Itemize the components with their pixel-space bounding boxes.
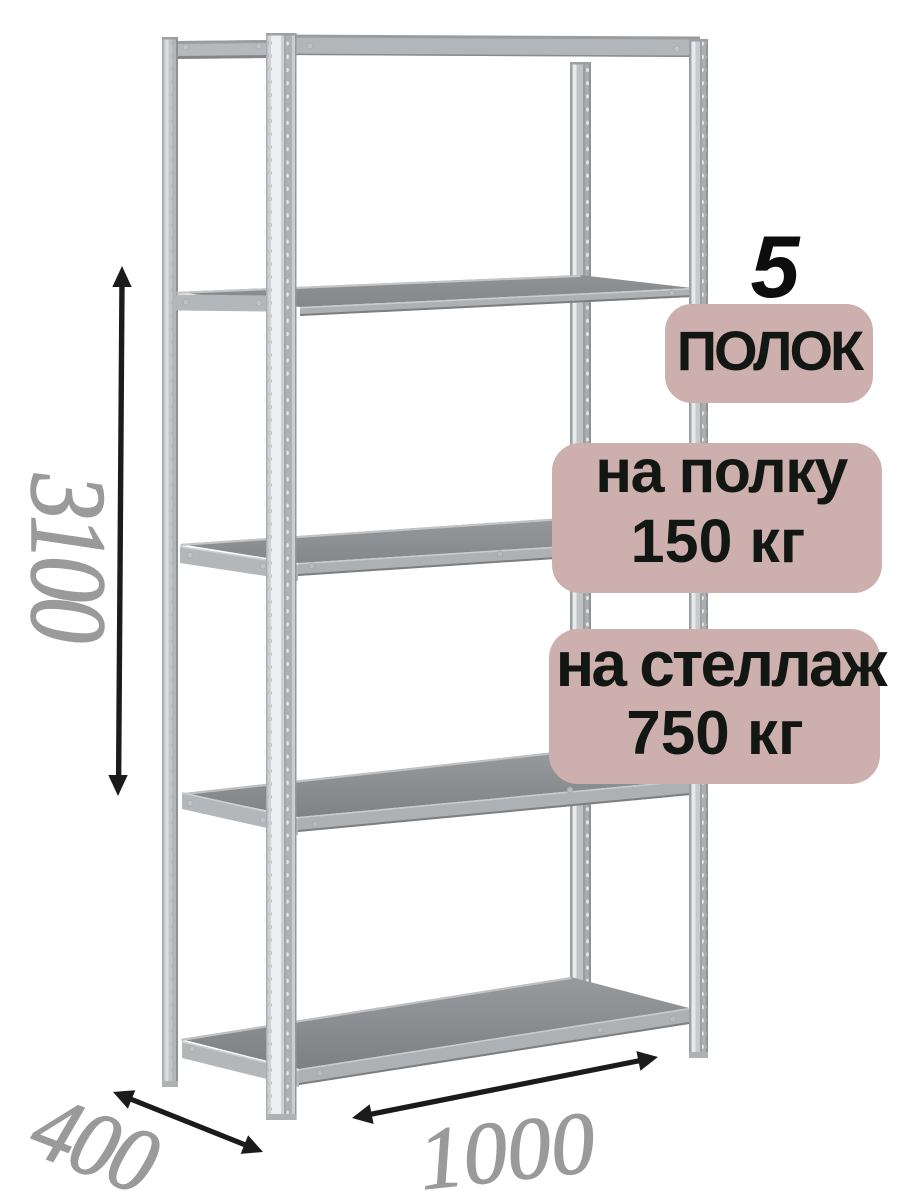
svg-text:на полку: на полку — [595, 437, 848, 505]
svg-text:750 кг: 750 кг — [626, 699, 804, 768]
svg-text:3100: 3100 — [8, 473, 127, 642]
svg-text:150 кг: 150 кг — [631, 507, 806, 575]
svg-text:ПОЛОК: ПОЛОК — [677, 319, 865, 382]
svg-text:5: 5 — [751, 217, 801, 316]
svg-text:на стеллаж: на стеллаж — [556, 628, 888, 700]
svg-text:1000: 1000 — [414, 1094, 599, 1200]
